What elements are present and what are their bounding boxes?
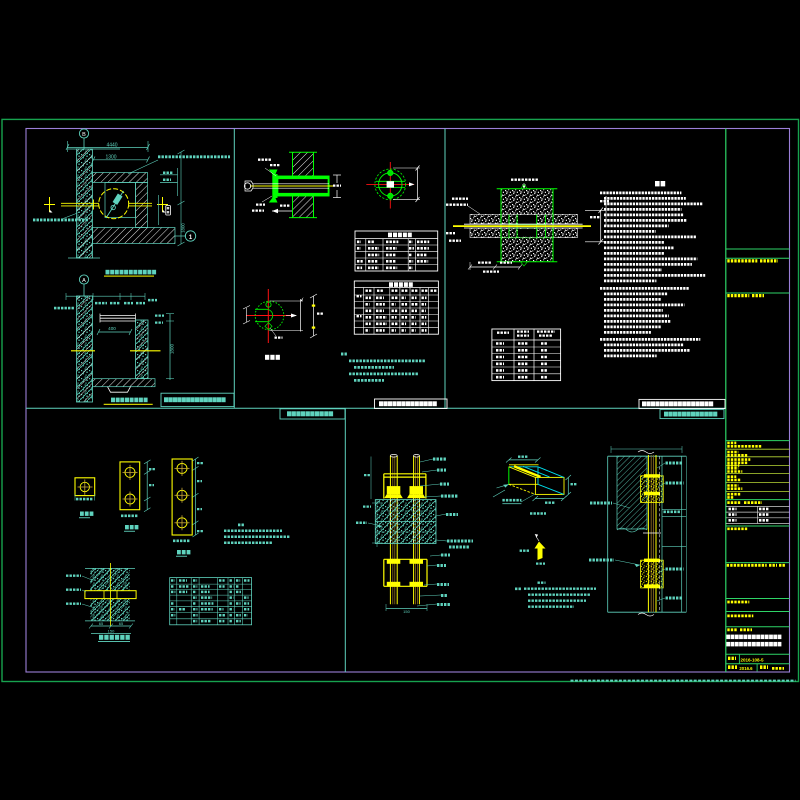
svg-text:1800: 1800: [181, 223, 186, 233]
svg-text:65: 65: [99, 621, 104, 626]
svg-text:150: 150: [403, 609, 410, 614]
svg-text:1800: 1800: [170, 343, 175, 354]
svg-text:65: 65: [119, 621, 124, 626]
svg-text:B: B: [82, 132, 86, 138]
svg-text:A: A: [82, 278, 86, 284]
svg-text:2016.6: 2016.6: [739, 666, 753, 671]
svg-text:150: 150: [108, 628, 115, 633]
svg-text:2016-108-5: 2016-108-5: [740, 658, 764, 663]
svg-text:400: 400: [108, 326, 116, 331]
